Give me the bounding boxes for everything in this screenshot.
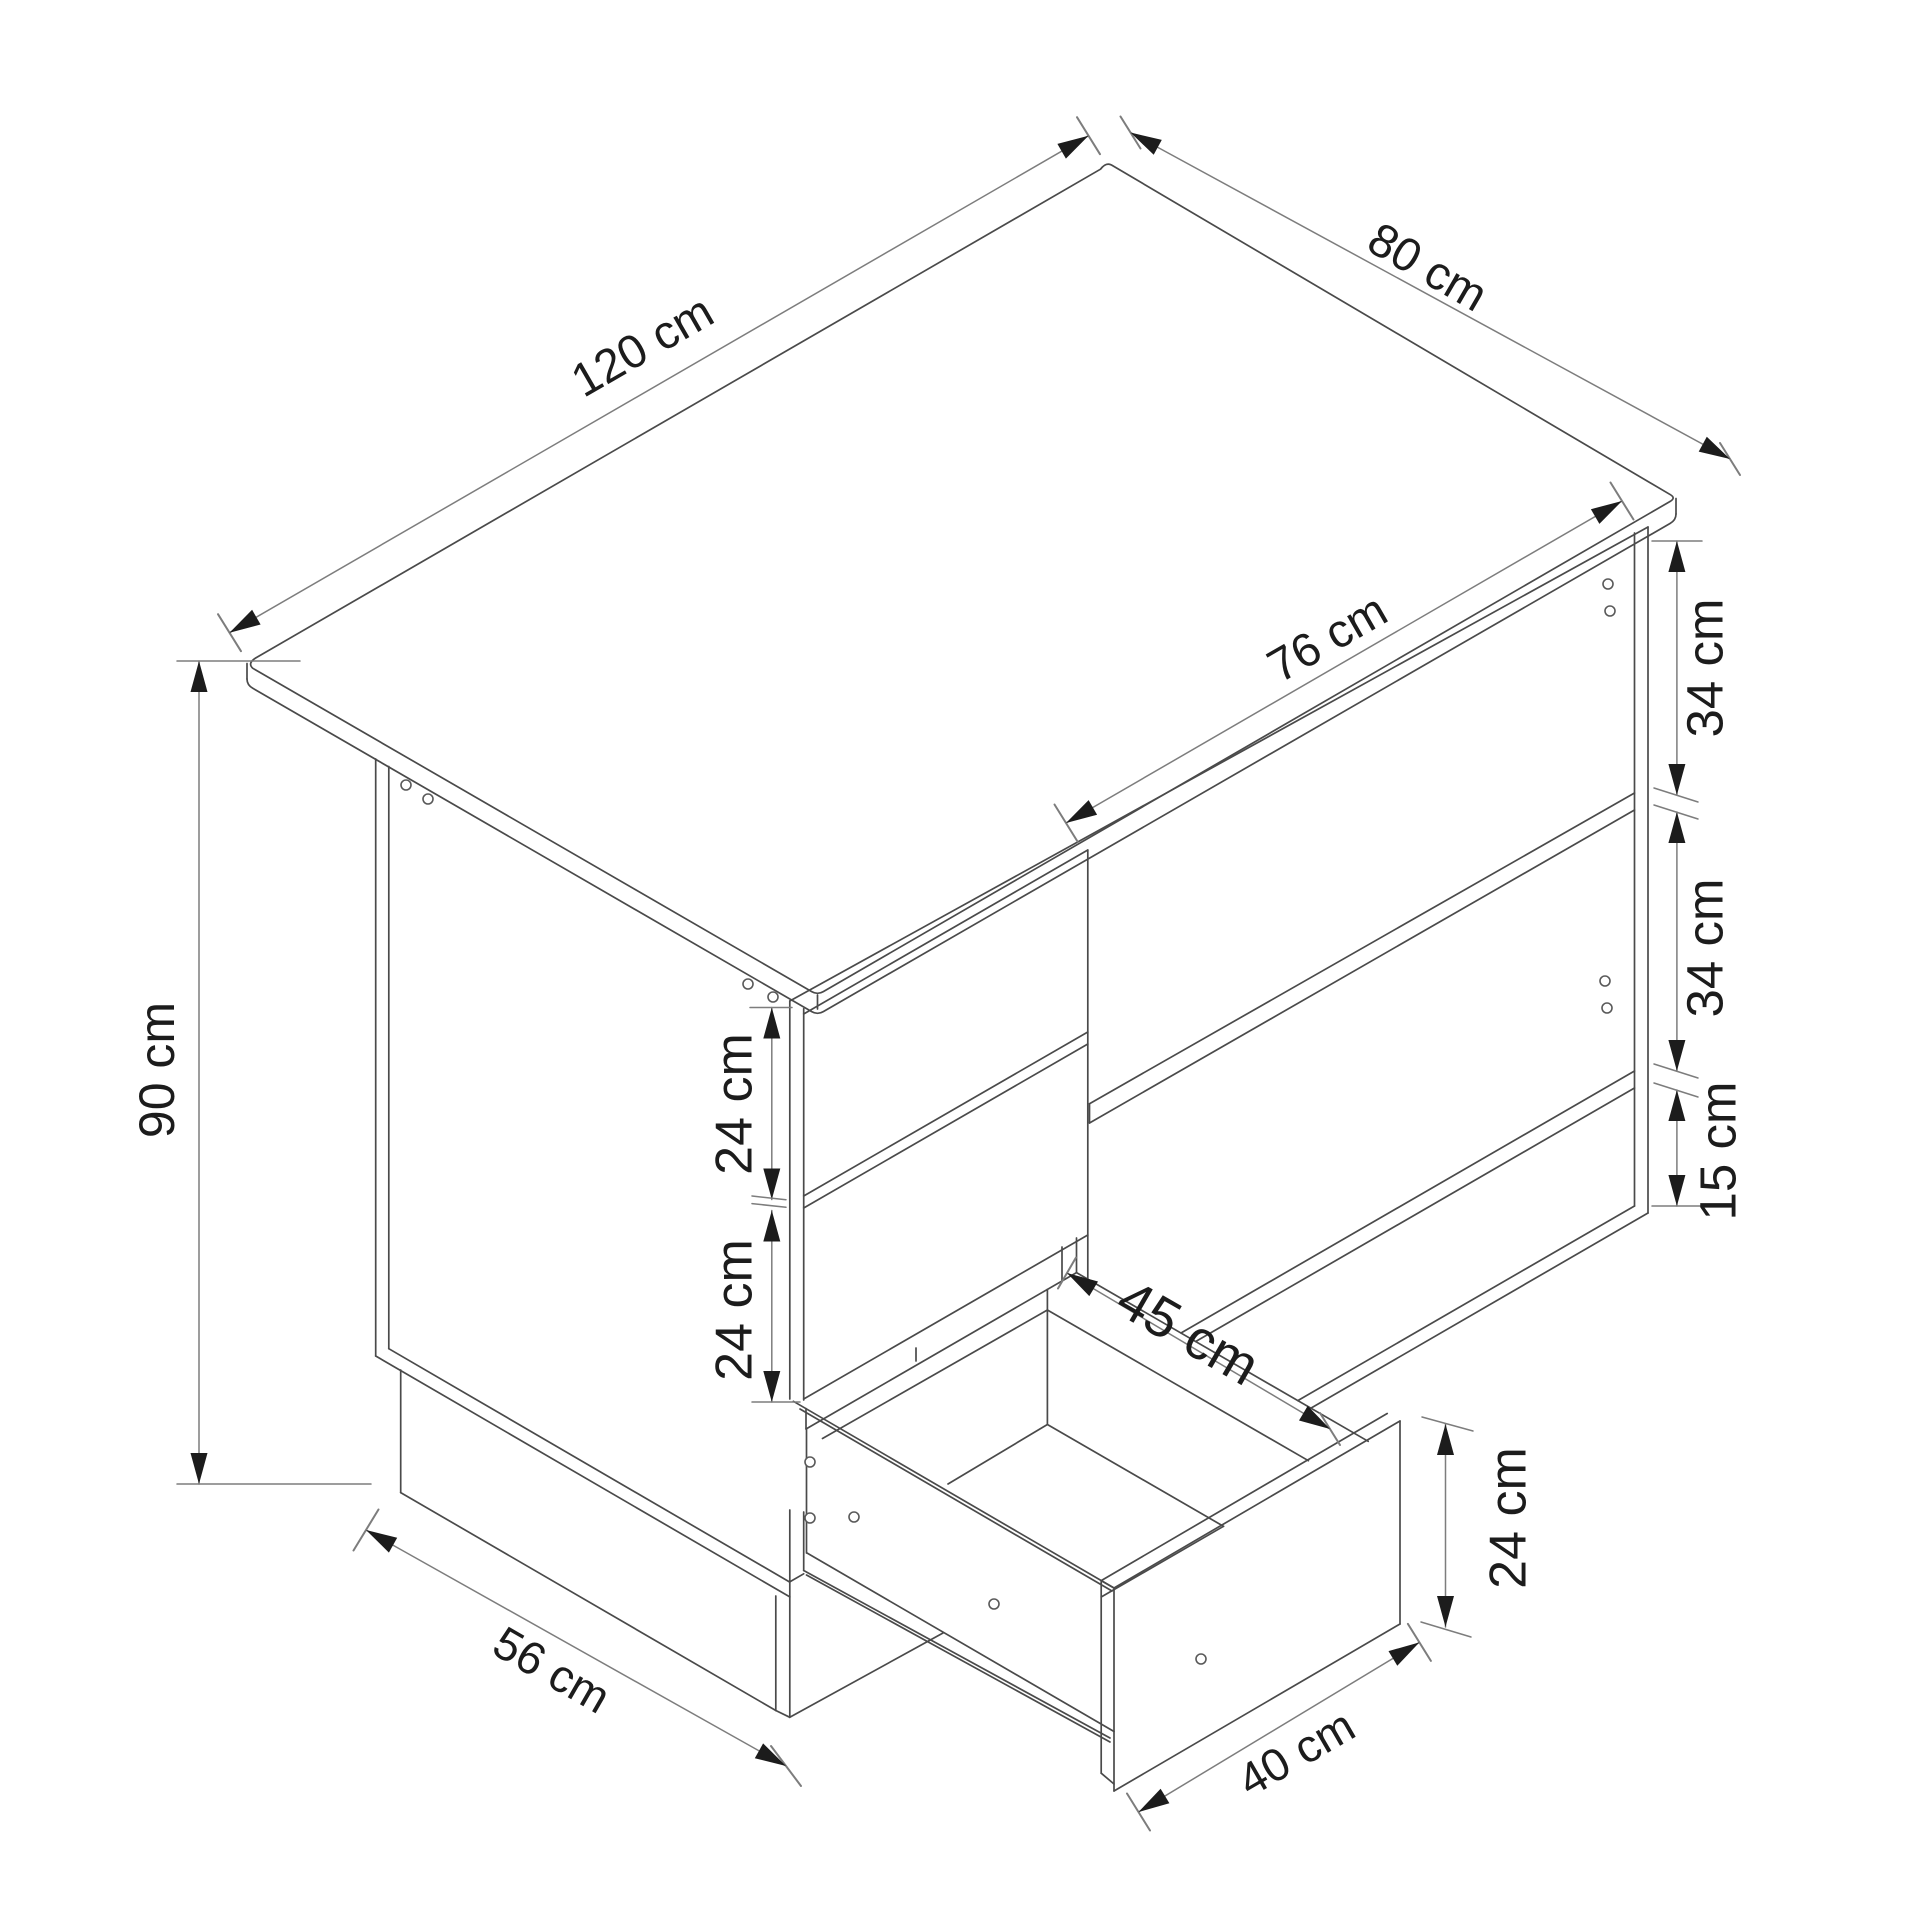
svg-text:34 cm: 34 cm [1676, 599, 1733, 738]
svg-text:24 cm: 24 cm [706, 1033, 764, 1175]
svg-text:24 cm: 24 cm [1480, 1447, 1538, 1589]
svg-text:15 cm: 15 cm [1689, 1082, 1746, 1221]
svg-text:24 cm: 24 cm [706, 1239, 764, 1381]
svg-text:90 cm: 90 cm [129, 1002, 185, 1138]
svg-text:34 cm: 34 cm [1676, 879, 1733, 1018]
